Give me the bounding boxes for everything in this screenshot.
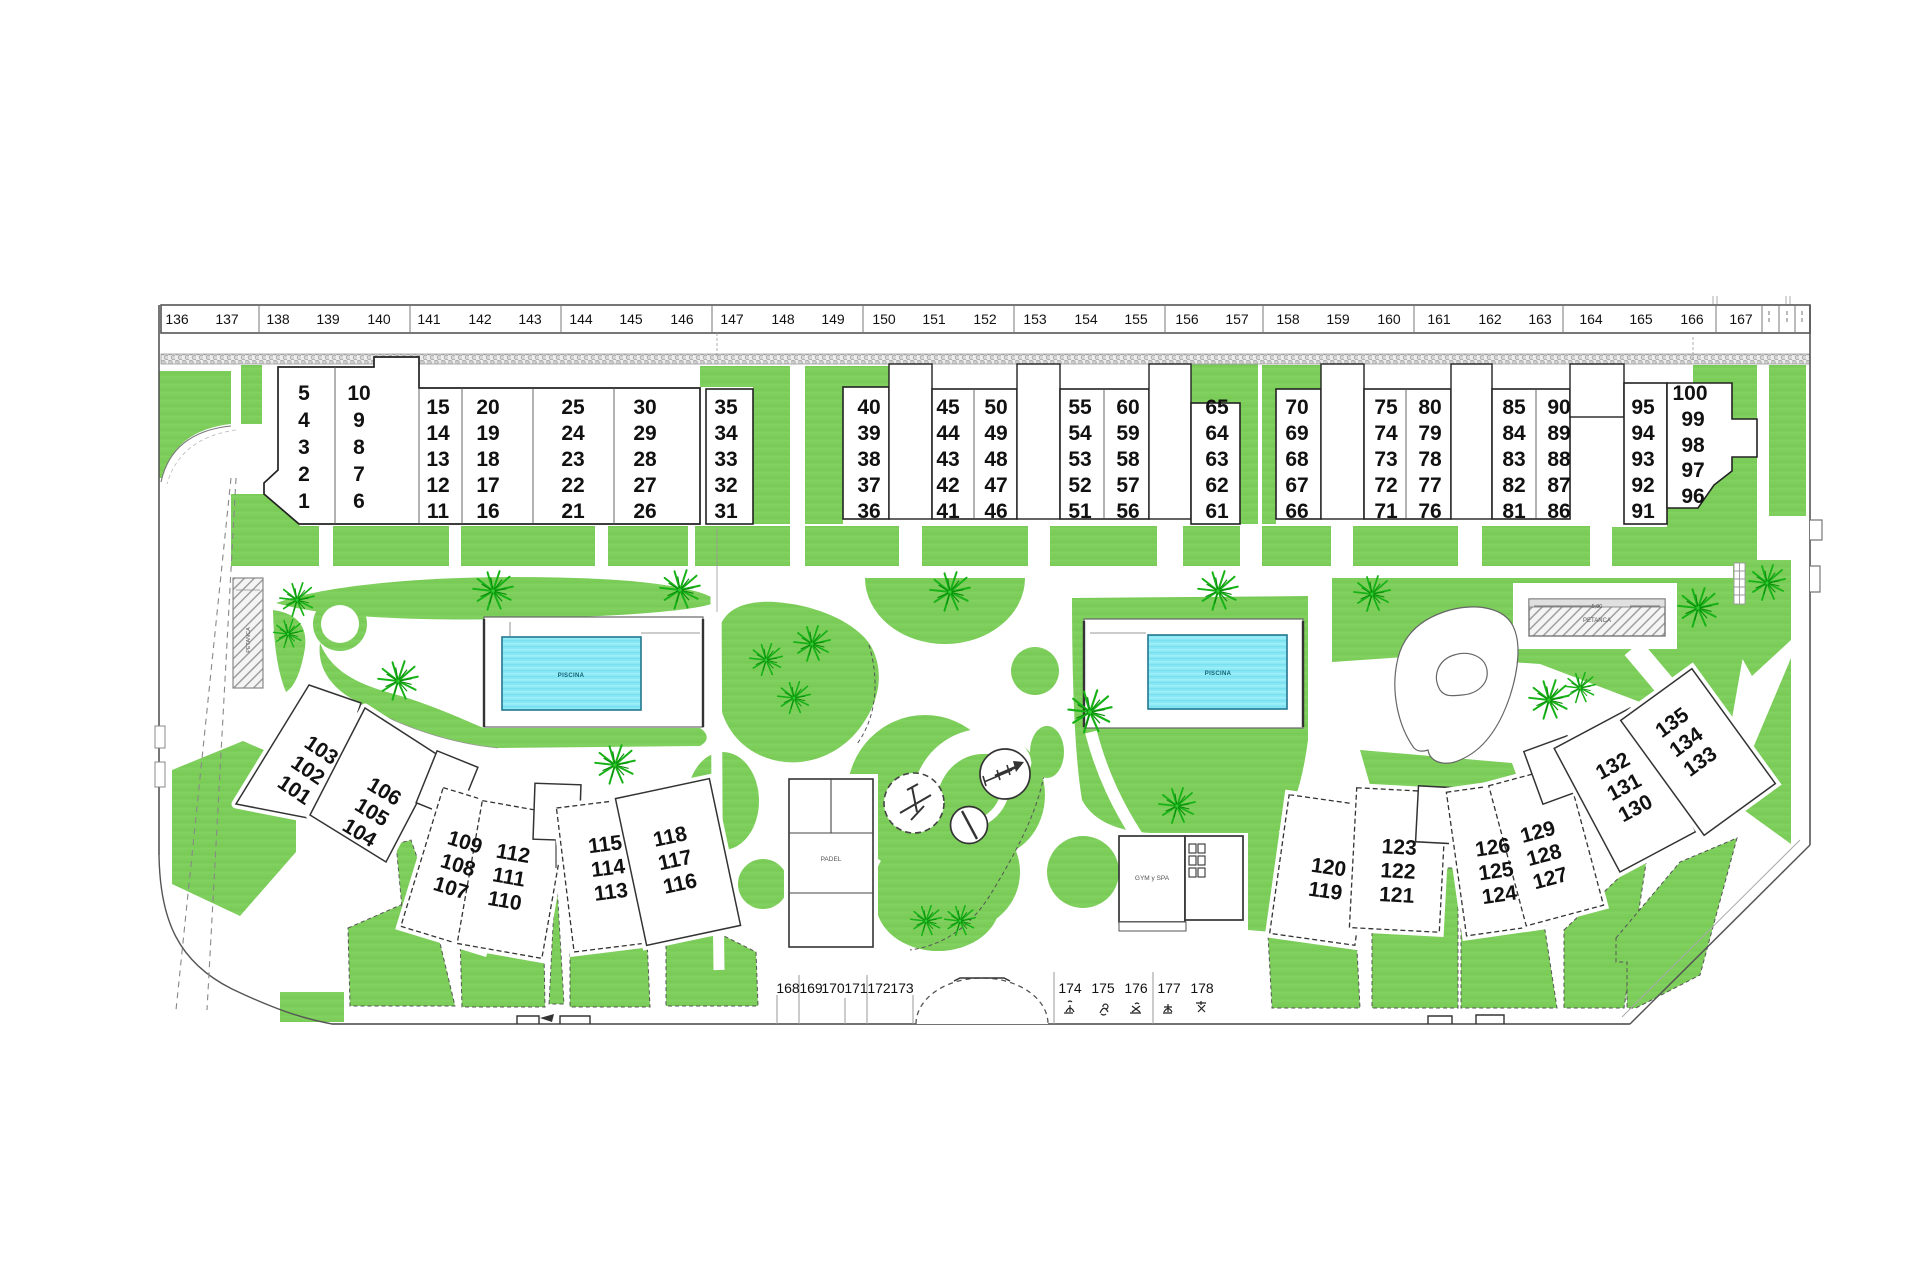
svg-text:148: 148 xyxy=(771,311,795,327)
svg-text:74: 74 xyxy=(1374,422,1398,445)
svg-text:6: 6 xyxy=(353,490,365,513)
svg-text:47: 47 xyxy=(984,474,1007,497)
svg-text:45: 45 xyxy=(936,396,960,419)
svg-text:41: 41 xyxy=(936,500,960,523)
svg-text:160: 160 xyxy=(1377,311,1401,327)
svg-text:169: 169 xyxy=(799,980,823,996)
svg-text:173: 173 xyxy=(890,980,914,996)
svg-text:7: 7 xyxy=(353,463,365,486)
svg-text:144: 144 xyxy=(569,311,593,327)
svg-text:175: 175 xyxy=(1091,980,1115,996)
svg-text:92: 92 xyxy=(1631,474,1654,497)
svg-text:5: 5 xyxy=(298,382,310,405)
svg-text:35: 35 xyxy=(714,396,738,419)
svg-text:152: 152 xyxy=(973,311,997,327)
svg-text:150: 150 xyxy=(872,311,896,327)
svg-text:23: 23 xyxy=(561,448,584,471)
svg-text:14: 14 xyxy=(426,422,450,445)
svg-text:24: 24 xyxy=(561,422,585,445)
svg-text:98: 98 xyxy=(1681,434,1705,457)
svg-text:100: 100 xyxy=(1672,382,1707,405)
svg-text:40: 40 xyxy=(857,396,880,419)
svg-text:145: 145 xyxy=(619,311,643,327)
svg-text:167: 167 xyxy=(1729,311,1753,327)
svg-text:17: 17 xyxy=(476,474,499,497)
svg-text:46: 46 xyxy=(984,500,1007,523)
svg-text:163: 163 xyxy=(1528,311,1552,327)
svg-text:34: 34 xyxy=(714,422,738,445)
svg-text:61: 61 xyxy=(1205,500,1229,523)
svg-text:38: 38 xyxy=(857,448,881,471)
svg-text:13: 13 xyxy=(426,448,449,471)
svg-text:21: 21 xyxy=(561,500,585,523)
svg-text:89: 89 xyxy=(1547,422,1570,445)
svg-text:162: 162 xyxy=(1478,311,1502,327)
svg-text:5,00: 5,00 xyxy=(1592,604,1603,610)
svg-text:58: 58 xyxy=(1116,448,1140,471)
svg-text:94: 94 xyxy=(1631,422,1655,445)
svg-text:29: 29 xyxy=(633,422,656,445)
svg-text:68: 68 xyxy=(1285,448,1309,471)
svg-text:76: 76 xyxy=(1418,500,1441,523)
svg-text:52: 52 xyxy=(1068,474,1091,497)
svg-text:157: 157 xyxy=(1225,311,1249,327)
svg-text:PISCINA: PISCINA xyxy=(1205,671,1232,677)
svg-text:8: 8 xyxy=(353,436,365,459)
svg-text:165: 165 xyxy=(1629,311,1653,327)
svg-text:83: 83 xyxy=(1502,448,1525,471)
svg-text:136: 136 xyxy=(165,311,189,327)
svg-text:22: 22 xyxy=(561,474,584,497)
svg-text:138: 138 xyxy=(266,311,290,327)
svg-text:42: 42 xyxy=(936,474,959,497)
svg-text:26: 26 xyxy=(633,500,656,523)
svg-text:33: 33 xyxy=(714,448,737,471)
svg-text:73: 73 xyxy=(1374,448,1397,471)
svg-text:155: 155 xyxy=(1124,311,1148,327)
svg-text:77: 77 xyxy=(1418,474,1441,497)
svg-text:11: 11 xyxy=(427,500,450,523)
svg-text:99: 99 xyxy=(1681,408,1704,431)
svg-text:146: 146 xyxy=(670,311,694,327)
svg-text:177: 177 xyxy=(1157,980,1181,996)
svg-text:2: 2 xyxy=(298,463,310,486)
svg-text:4: 4 xyxy=(298,409,310,432)
svg-text:85: 85 xyxy=(1502,396,1526,419)
svg-text:143: 143 xyxy=(518,311,542,327)
svg-text:147: 147 xyxy=(720,311,744,327)
svg-text:87: 87 xyxy=(1547,474,1570,497)
svg-text:174: 174 xyxy=(1058,980,1082,996)
svg-text:32: 32 xyxy=(714,474,737,497)
svg-text:122: 122 xyxy=(1380,859,1416,884)
svg-text:GYM y SPA: GYM y SPA xyxy=(1135,875,1170,882)
svg-text:9: 9 xyxy=(353,409,365,432)
svg-text:19: 19 xyxy=(476,422,499,445)
svg-text:69: 69 xyxy=(1285,422,1308,445)
svg-text:3: 3 xyxy=(298,436,310,459)
svg-text:86: 86 xyxy=(1547,500,1570,523)
svg-text:PETANCA: PETANCA xyxy=(1583,618,1611,624)
svg-text:125: 125 xyxy=(1477,858,1515,886)
svg-text:120: 120 xyxy=(1310,854,1348,882)
svg-text:81: 81 xyxy=(1502,500,1526,523)
svg-text:140: 140 xyxy=(367,311,391,327)
svg-text:66: 66 xyxy=(1285,500,1308,523)
svg-text:90: 90 xyxy=(1547,396,1570,419)
svg-text:95: 95 xyxy=(1631,396,1655,419)
svg-text:84: 84 xyxy=(1502,422,1526,445)
svg-text:78: 78 xyxy=(1418,448,1442,471)
svg-text:72: 72 xyxy=(1374,474,1397,497)
svg-text:178: 178 xyxy=(1190,980,1214,996)
svg-text:51: 51 xyxy=(1068,500,1092,523)
svg-text:151: 151 xyxy=(922,311,946,327)
svg-text:142: 142 xyxy=(468,311,492,327)
svg-text:82: 82 xyxy=(1502,474,1525,497)
svg-text:43: 43 xyxy=(936,448,959,471)
svg-text:159: 159 xyxy=(1326,311,1350,327)
svg-text:31: 31 xyxy=(714,500,738,523)
svg-text:18: 18 xyxy=(476,448,500,471)
svg-text:164: 164 xyxy=(1579,311,1603,327)
svg-text:119: 119 xyxy=(1307,878,1344,905)
svg-text:48: 48 xyxy=(984,448,1008,471)
svg-text:96: 96 xyxy=(1681,485,1704,508)
svg-text:97: 97 xyxy=(1681,459,1704,482)
svg-text:153: 153 xyxy=(1023,311,1047,327)
svg-text:93: 93 xyxy=(1631,448,1654,471)
svg-text:67: 67 xyxy=(1285,474,1308,497)
svg-text:27: 27 xyxy=(633,474,656,497)
svg-text:44: 44 xyxy=(936,422,960,445)
svg-text:PADEL: PADEL xyxy=(821,856,842,863)
svg-text:53: 53 xyxy=(1068,448,1091,471)
svg-text:75: 75 xyxy=(1374,396,1398,419)
svg-text:60: 60 xyxy=(1116,396,1139,419)
svg-text:113: 113 xyxy=(593,879,629,906)
svg-text:154: 154 xyxy=(1074,311,1098,327)
svg-text:161: 161 xyxy=(1427,311,1451,327)
svg-text:PETANCA: PETANCA xyxy=(246,627,252,653)
svg-text:126: 126 xyxy=(1474,834,1512,862)
svg-text:70: 70 xyxy=(1285,396,1308,419)
svg-text:63: 63 xyxy=(1205,448,1228,471)
svg-text:91: 91 xyxy=(1631,500,1655,523)
svg-text:56: 56 xyxy=(1116,500,1139,523)
svg-text:16: 16 xyxy=(476,500,499,523)
svg-text:141: 141 xyxy=(417,311,441,327)
svg-text:PISCINA: PISCINA xyxy=(558,673,585,679)
svg-text:1: 1 xyxy=(298,490,310,513)
svg-text:156: 156 xyxy=(1175,311,1199,327)
svg-text:121: 121 xyxy=(1379,883,1416,908)
svg-text:49: 49 xyxy=(984,422,1007,445)
svg-text:57: 57 xyxy=(1116,474,1139,497)
svg-text:39: 39 xyxy=(857,422,880,445)
svg-text:158: 158 xyxy=(1276,311,1300,327)
svg-text:124: 124 xyxy=(1480,881,1518,909)
svg-text:79: 79 xyxy=(1418,422,1441,445)
svg-text:115: 115 xyxy=(587,831,624,858)
svg-text:137: 137 xyxy=(215,311,239,327)
svg-text:64: 64 xyxy=(1205,422,1229,445)
svg-text:171: 171 xyxy=(844,980,868,996)
svg-text:54: 54 xyxy=(1068,422,1092,445)
svg-text:37: 37 xyxy=(857,474,880,497)
svg-text:62: 62 xyxy=(1205,474,1228,497)
svg-text:123: 123 xyxy=(1381,835,1417,860)
svg-text:12: 12 xyxy=(426,474,449,497)
svg-text:170: 170 xyxy=(821,980,845,996)
svg-text:10: 10 xyxy=(347,382,370,405)
svg-text:20: 20 xyxy=(476,396,499,419)
svg-text:80: 80 xyxy=(1418,396,1441,419)
svg-text:176: 176 xyxy=(1124,980,1148,996)
svg-text:30: 30 xyxy=(633,396,656,419)
svg-text:15: 15 xyxy=(426,396,450,419)
svg-text:149: 149 xyxy=(821,311,845,327)
svg-text:166: 166 xyxy=(1680,311,1704,327)
svg-text:139: 139 xyxy=(316,311,340,327)
svg-text:71: 71 xyxy=(1374,500,1398,523)
svg-text:55: 55 xyxy=(1068,396,1092,419)
svg-text:114: 114 xyxy=(590,855,627,882)
svg-text:168: 168 xyxy=(776,980,800,996)
svg-text:65: 65 xyxy=(1205,396,1229,419)
svg-text:88: 88 xyxy=(1547,448,1571,471)
svg-text:172: 172 xyxy=(867,980,891,996)
svg-text:25: 25 xyxy=(561,396,585,419)
svg-text:59: 59 xyxy=(1116,422,1139,445)
svg-text:36: 36 xyxy=(857,500,880,523)
svg-text:28: 28 xyxy=(633,448,657,471)
svg-text:50: 50 xyxy=(984,396,1007,419)
